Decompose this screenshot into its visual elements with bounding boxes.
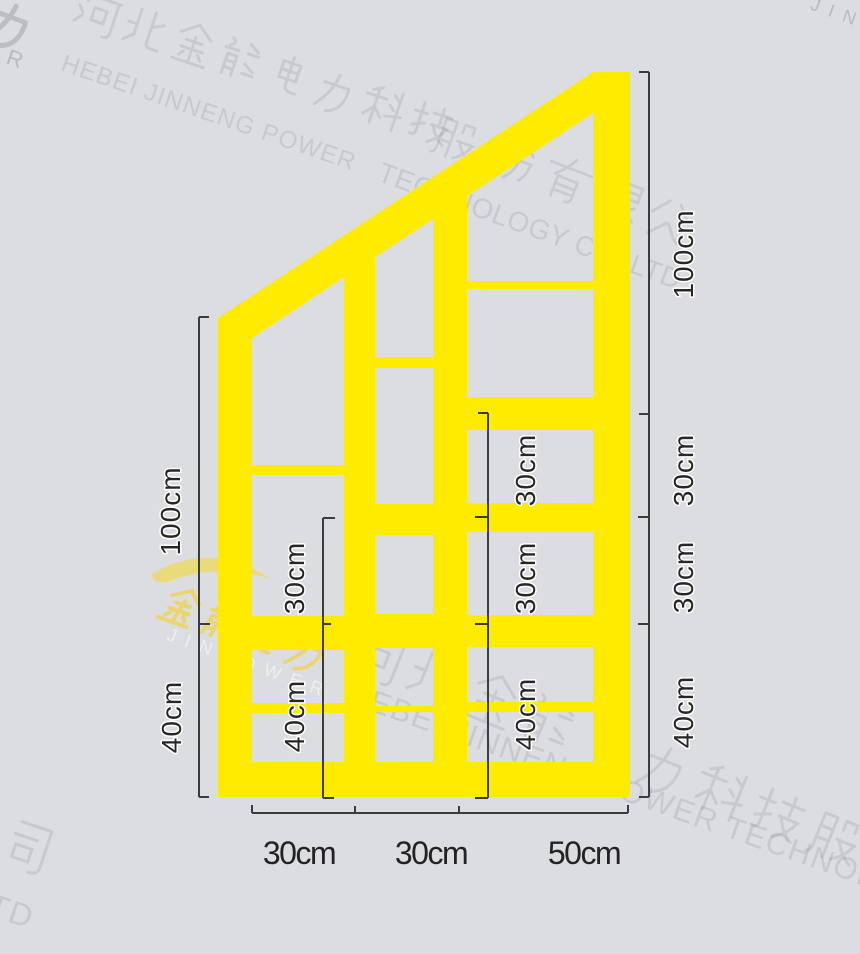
- svg-text:30cm: 30cm: [668, 434, 699, 506]
- svg-text:100cm: 100cm: [155, 466, 186, 555]
- svg-text:40cm: 40cm: [668, 676, 699, 748]
- svg-text:40cm: 40cm: [510, 678, 541, 750]
- svg-text:100cm: 100cm: [668, 209, 699, 298]
- svg-text:30cm: 30cm: [510, 434, 541, 506]
- svg-text:40cm: 40cm: [156, 681, 187, 753]
- svg-text:40cm: 40cm: [279, 680, 310, 752]
- svg-text:50cm: 50cm: [548, 835, 620, 871]
- svg-text:30cm: 30cm: [279, 542, 310, 614]
- svg-text:30cm: 30cm: [263, 835, 335, 871]
- svg-text:30cm: 30cm: [668, 541, 699, 613]
- svg-text:30cm: 30cm: [510, 542, 541, 614]
- svg-text:30cm: 30cm: [395, 835, 467, 871]
